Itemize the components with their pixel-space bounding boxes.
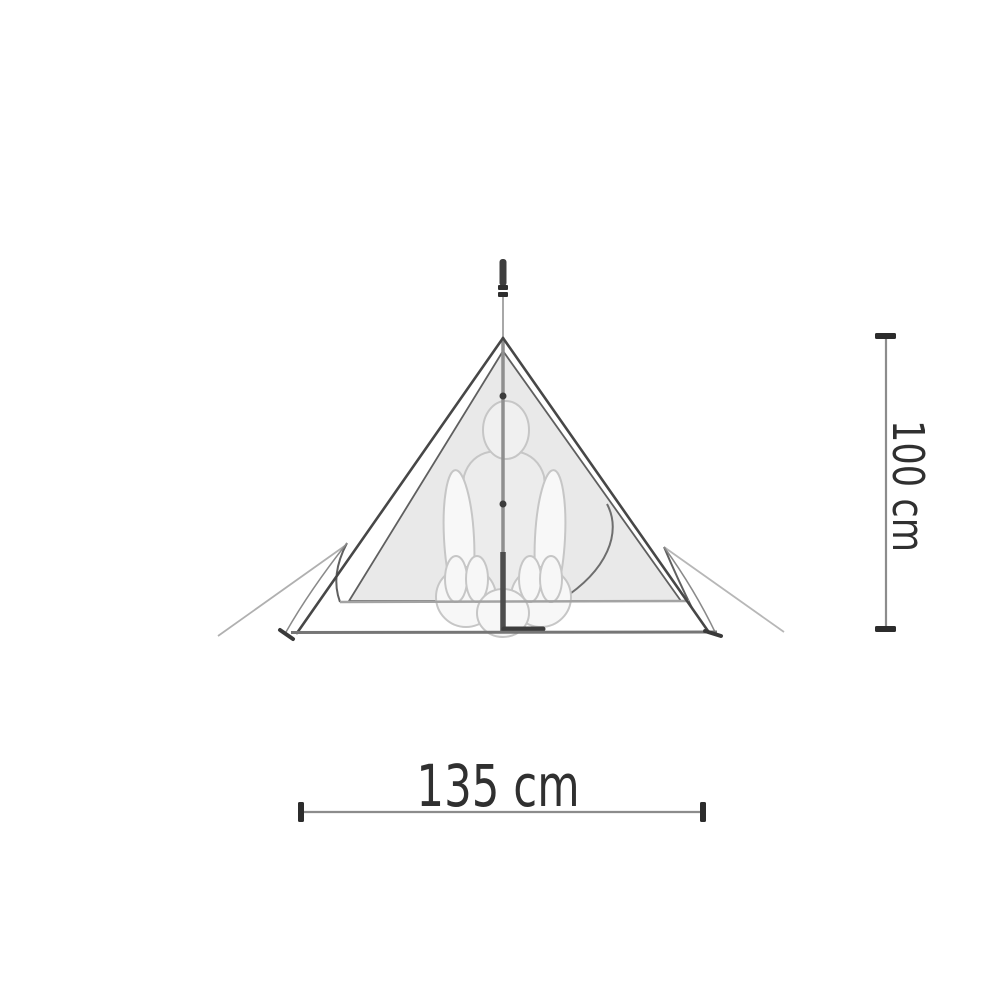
pole-joint-dot-lower [500, 501, 507, 508]
corner-flap-left-outer-edge [286, 543, 347, 632]
height-dimension-cap-bottom [875, 626, 896, 632]
ground-line [291, 632, 717, 633]
inner-floor-line [340, 601, 689, 602]
pole-ferrule-lower [498, 292, 508, 297]
diagram-stage: 135 cm 100 cm [0, 0, 1000, 1000]
pole-top-section [500, 259, 507, 286]
tent-diagram-canvas [0, 0, 1000, 1000]
height-dimension-label: 100 cm [885, 420, 929, 552]
figure-head [483, 401, 529, 459]
width-dimension-cap-right [700, 802, 706, 822]
pole-joint-dot-upper [500, 393, 507, 400]
width-dimension-label: 135 cm [416, 757, 579, 815]
width-dimension-cap-left [298, 802, 304, 822]
figure-knee-left-outer [445, 556, 467, 602]
pole-ferrule-upper [498, 285, 508, 290]
height-dimension-cap-top [875, 333, 896, 339]
stake-right [705, 631, 721, 636]
figure-knee-right-outer [540, 556, 562, 602]
figure-knee-right-inner [519, 556, 541, 602]
